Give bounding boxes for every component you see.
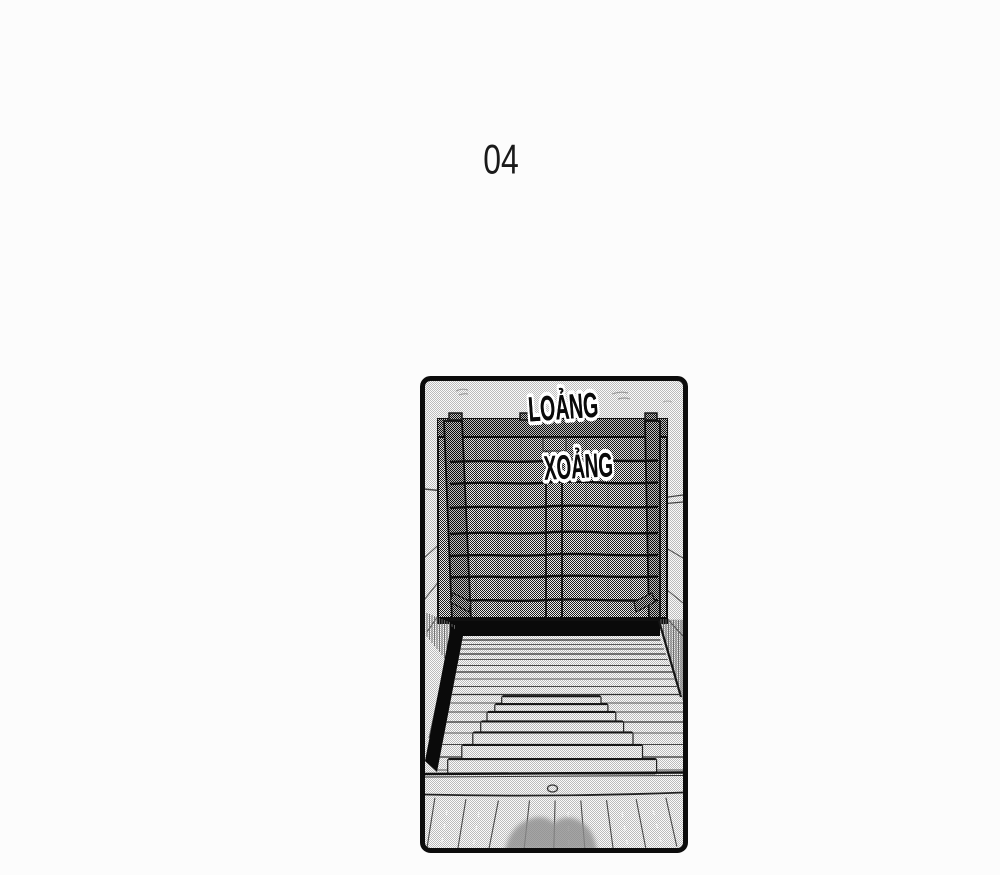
svg-text:04: 04 — [483, 135, 519, 182]
svg-text:LOẢNG: LOẢNG — [527, 385, 600, 430]
svg-text:XOẢNG: XOẢNG — [543, 446, 614, 488]
